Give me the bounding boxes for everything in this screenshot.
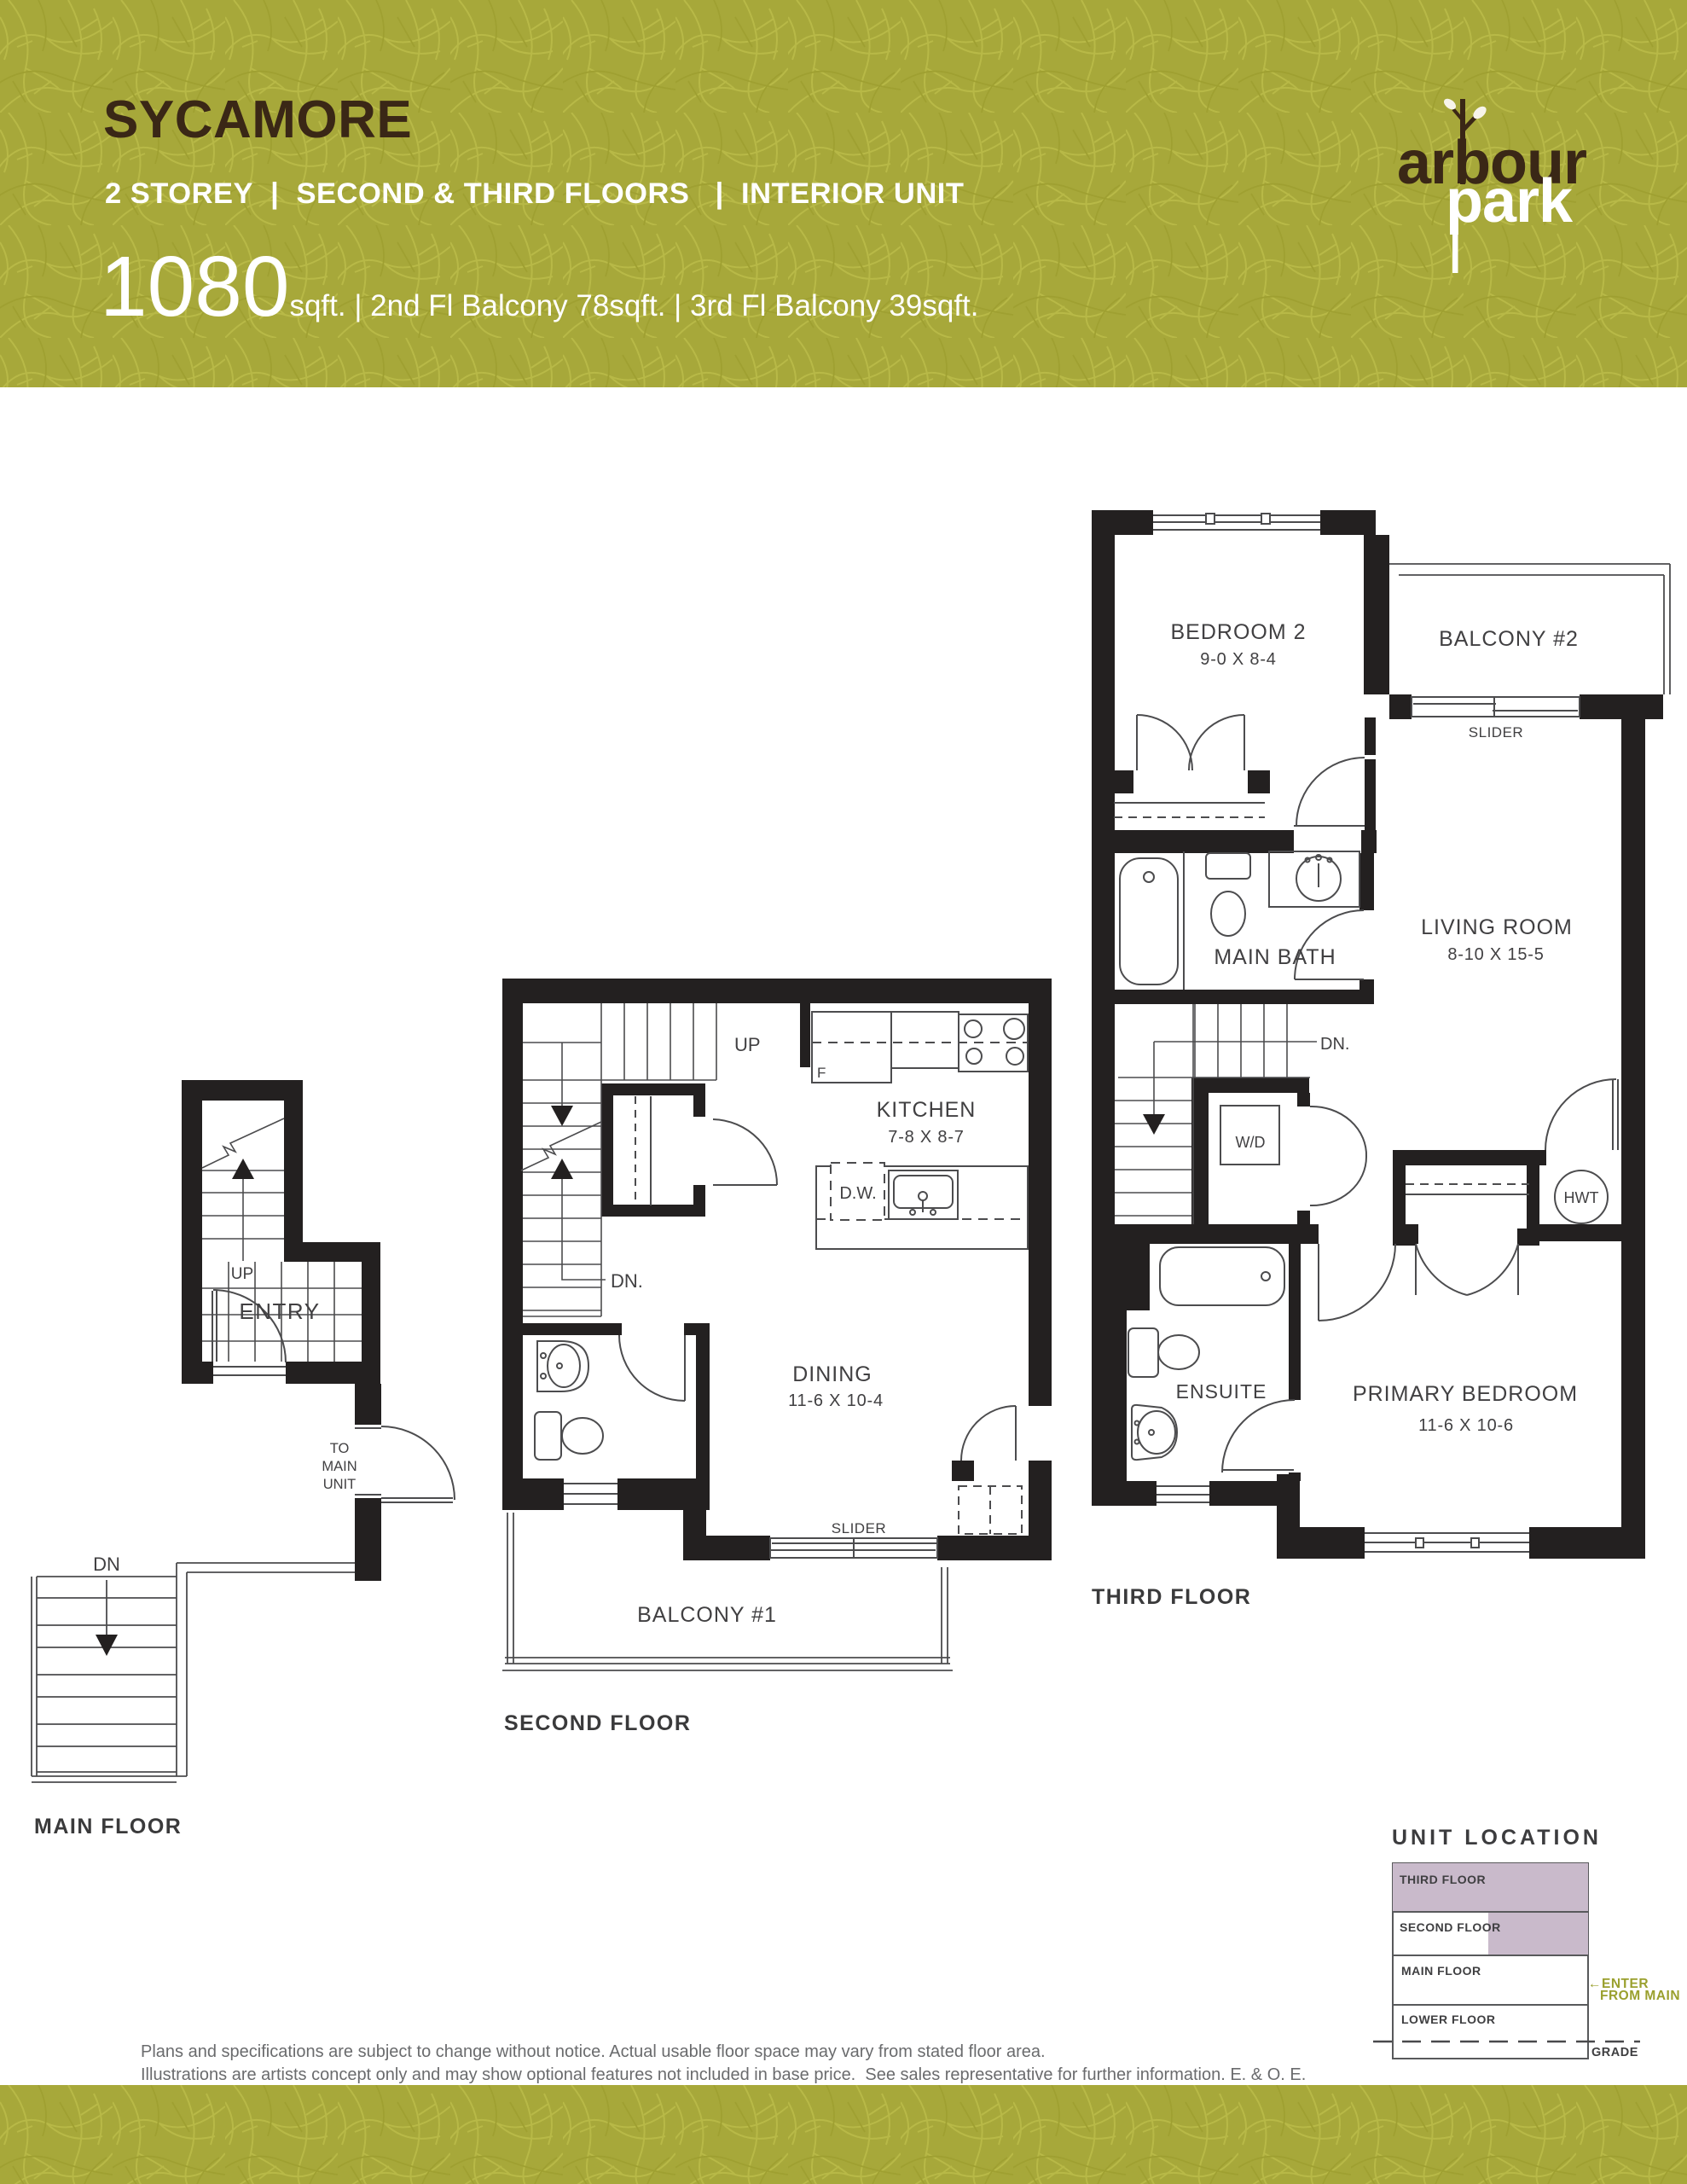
svg-text:THIRD FLOOR: THIRD FLOOR	[1400, 1873, 1486, 1886]
svg-text:MAIN FLOOR: MAIN FLOOR	[1401, 1964, 1481, 1978]
svg-text:LOWER FLOOR: LOWER FLOOR	[1401, 2013, 1496, 2026]
svg-text:FROM MAIN: FROM MAIN	[1600, 1989, 1680, 2003]
svg-text:GRADE: GRADE	[1591, 2046, 1638, 2059]
svg-text:SECOND FLOOR: SECOND FLOOR	[1400, 1920, 1501, 1934]
